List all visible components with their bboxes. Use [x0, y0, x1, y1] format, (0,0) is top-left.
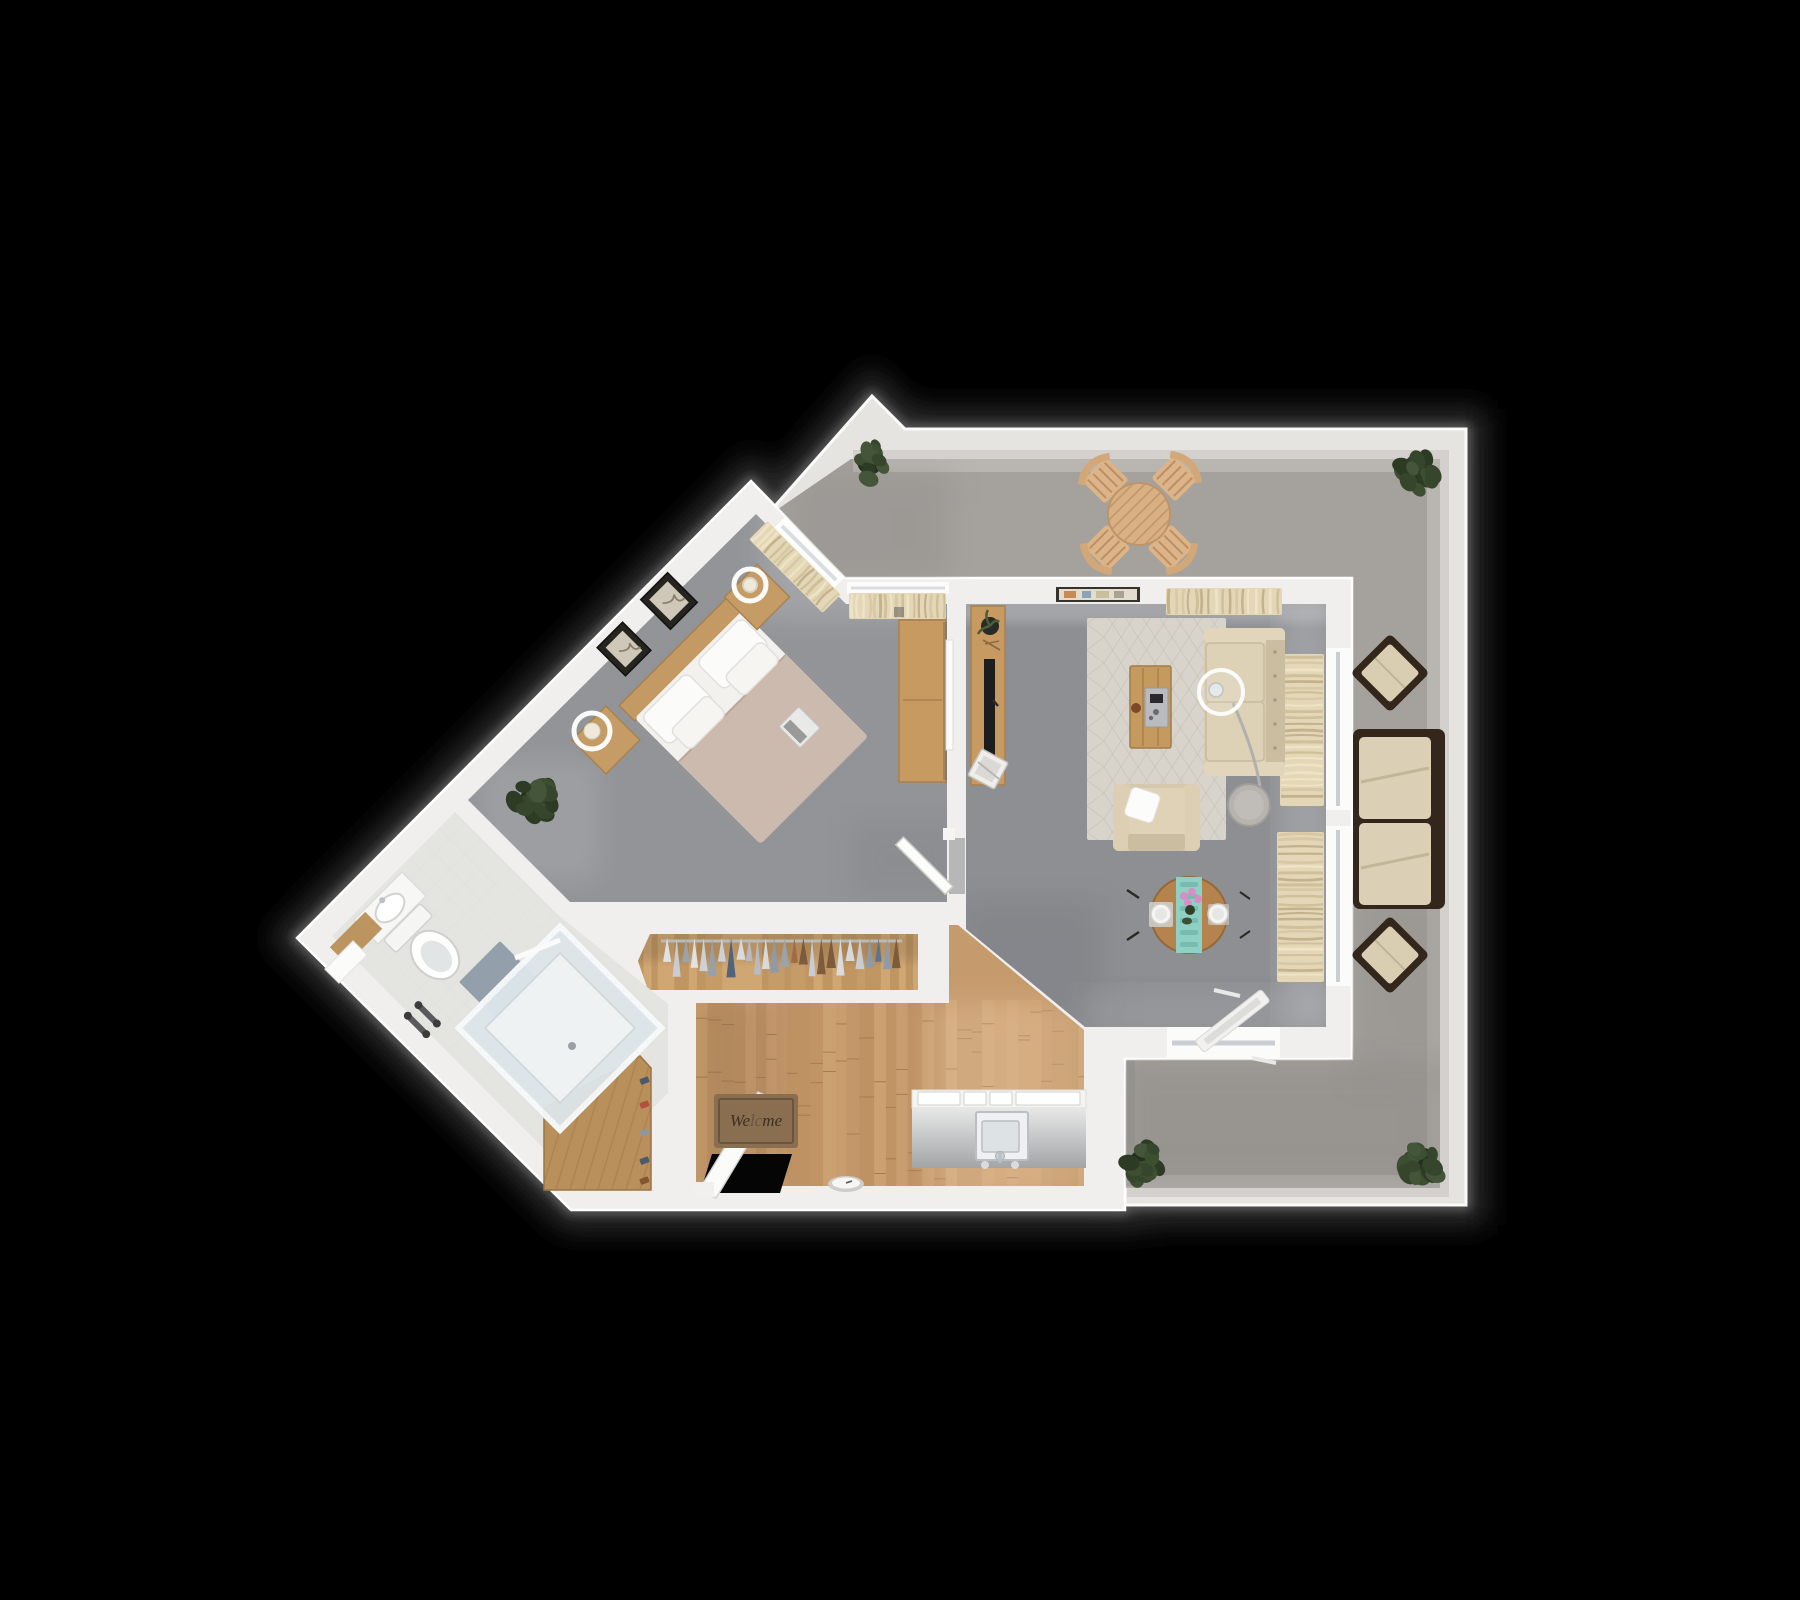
svg-text:Welcme: Welcme	[730, 1111, 783, 1130]
